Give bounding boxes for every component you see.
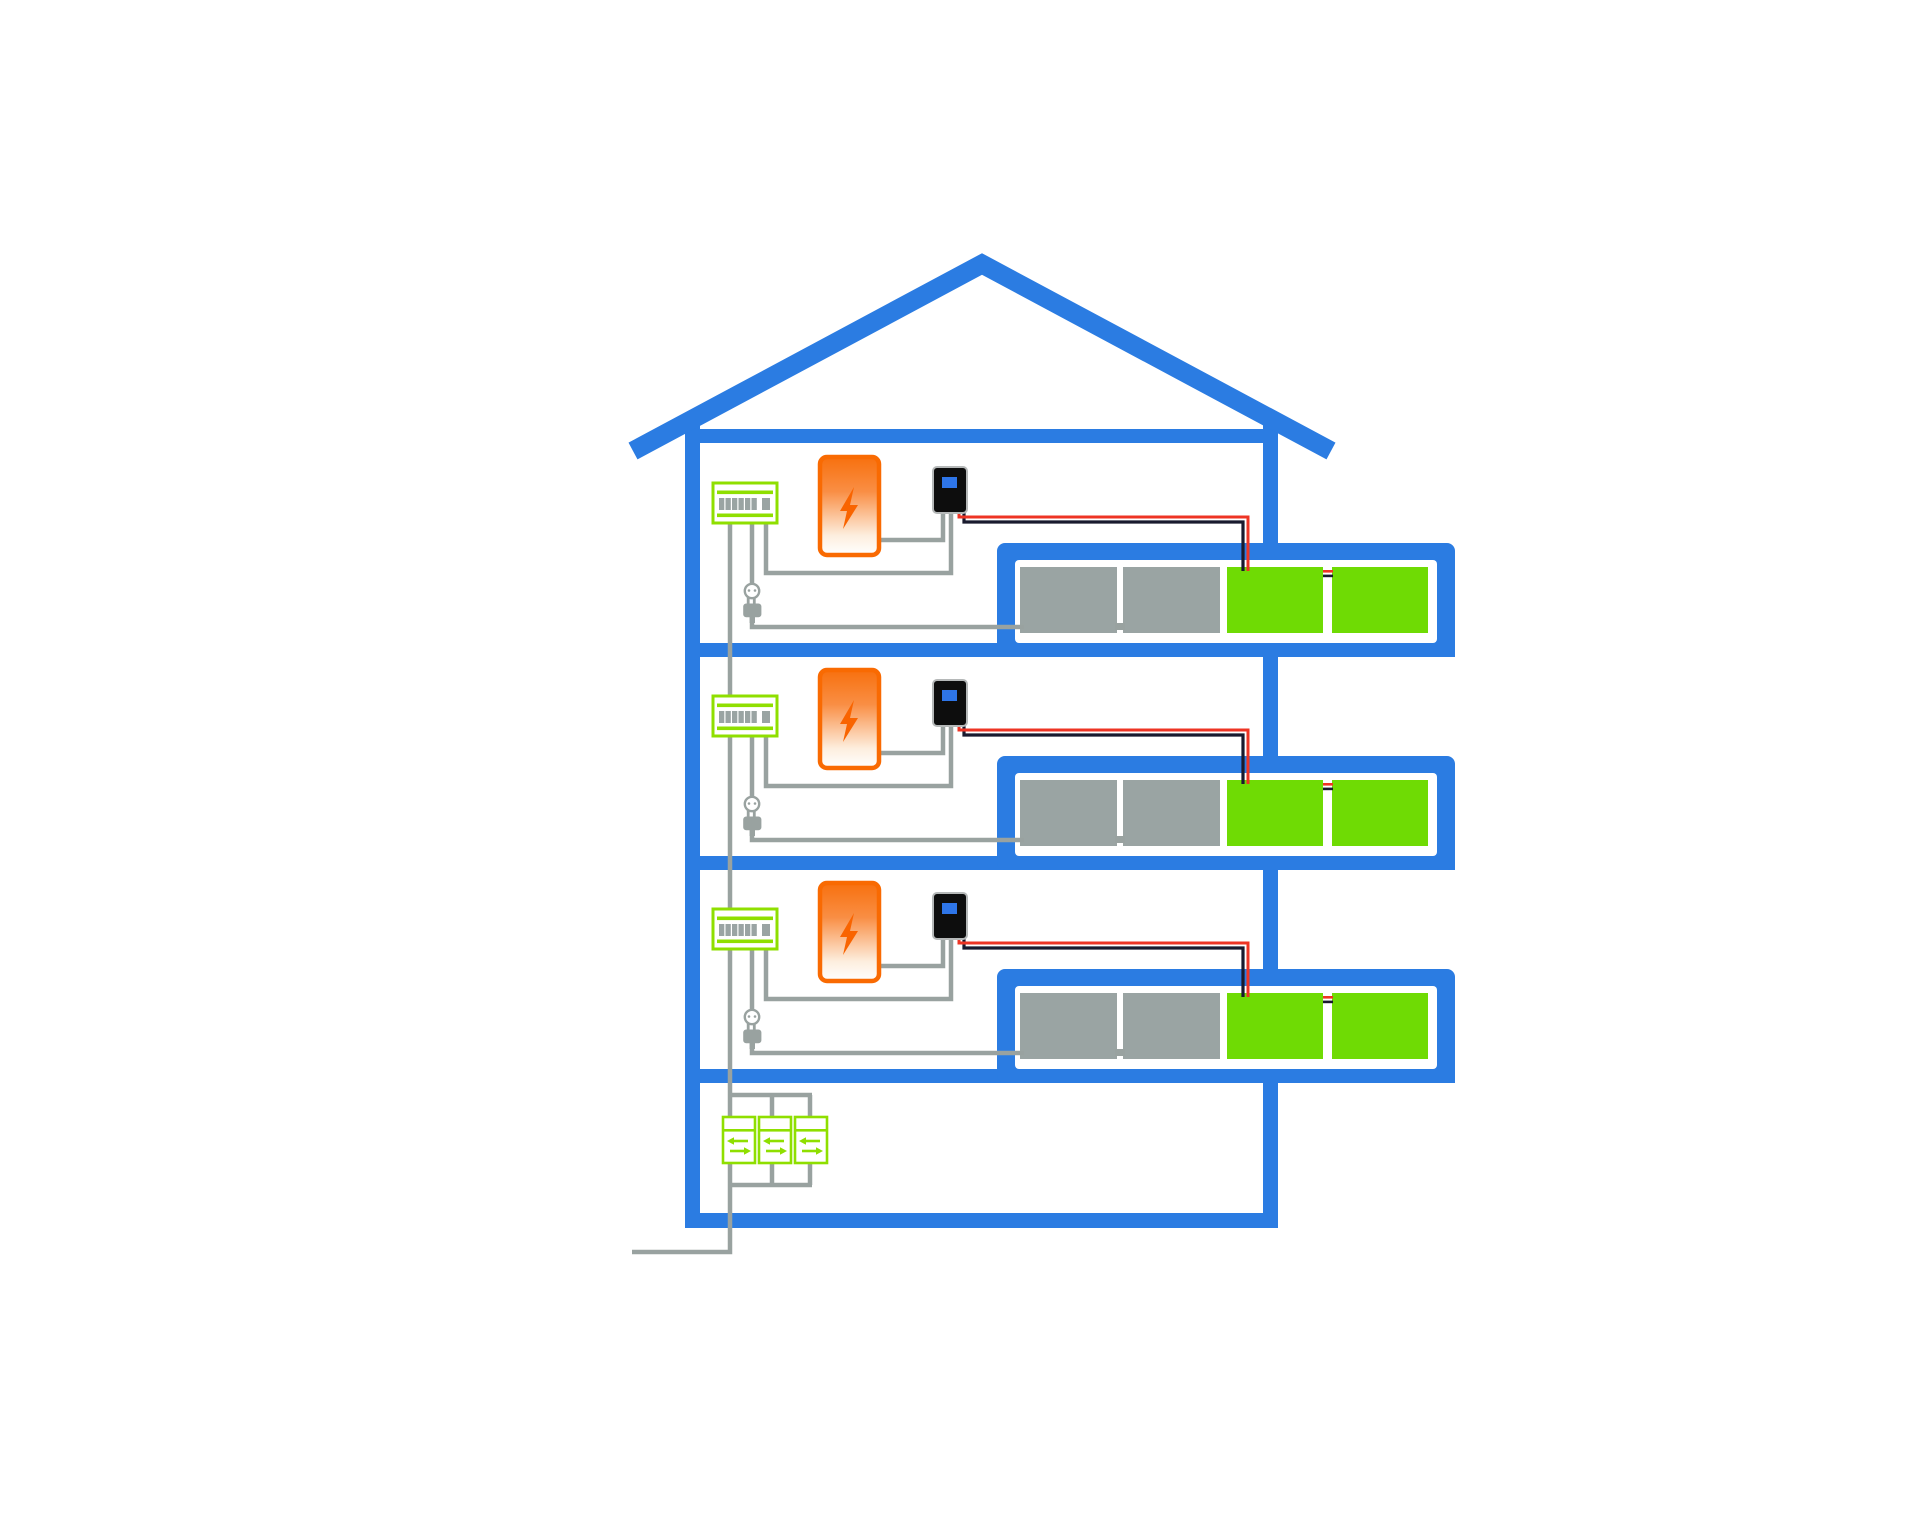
balcony xyxy=(997,756,1455,870)
ceiling-beam-top xyxy=(690,429,1278,443)
inverter-body xyxy=(933,467,967,513)
balcony-panel-gray-1 xyxy=(1020,993,1117,1059)
board-stripe-top xyxy=(717,491,773,495)
module-link-red xyxy=(1323,783,1333,786)
plug-stem xyxy=(750,829,755,836)
bottom-slab xyxy=(685,1213,1278,1228)
solar-module-green-2 xyxy=(1332,780,1428,846)
plug-icon xyxy=(743,817,761,831)
electricity-meter xyxy=(820,457,879,555)
power-socket-plug xyxy=(743,797,761,836)
balcony xyxy=(997,543,1455,657)
plug-icon xyxy=(743,1030,761,1044)
balcony-panel-gray-2 xyxy=(1123,567,1220,633)
socket-pin-hole xyxy=(754,802,757,805)
meter-to-inverter-wire xyxy=(877,938,943,966)
plug-stem xyxy=(750,616,755,623)
balcony-panel-gray-2 xyxy=(1123,993,1220,1059)
energy-meter xyxy=(723,1117,755,1163)
socket-pin-hole xyxy=(748,802,751,805)
board-stripe-bottom xyxy=(717,727,773,731)
gray-panel-link xyxy=(1115,1049,1125,1056)
energy-meter-divider xyxy=(795,1129,827,1132)
solar-module-green-2 xyxy=(1332,993,1428,1059)
balcony-panel-gray-2 xyxy=(1123,780,1220,846)
power-socket-plug xyxy=(743,1010,761,1049)
electricity-meter xyxy=(820,670,879,768)
plug-icon xyxy=(743,604,761,618)
roof xyxy=(633,264,1331,451)
inverter-body xyxy=(933,893,967,939)
solar-module-green-1 xyxy=(1227,993,1323,1059)
board-stripe-bottom xyxy=(717,514,773,518)
solar-module-green-1 xyxy=(1227,567,1323,633)
distribution-board xyxy=(713,483,777,523)
energy-meter xyxy=(759,1117,791,1163)
inverter-display xyxy=(942,690,957,701)
floor-unit xyxy=(713,670,1455,870)
socket-pin-hole xyxy=(748,1015,751,1018)
micro-inverter xyxy=(933,680,967,726)
diagram-canvas xyxy=(0,0,1920,1537)
board-stripe-top xyxy=(717,917,773,921)
socket-icon xyxy=(745,797,759,811)
plug-to-balcony-wire xyxy=(752,1040,1024,1053)
board-stripe-top xyxy=(717,704,773,708)
module-link-black xyxy=(1323,575,1333,578)
electricity-meter xyxy=(820,883,879,981)
meter-to-inverter-wire xyxy=(877,725,943,753)
solar-module-green-2 xyxy=(1332,567,1428,633)
module-link-red xyxy=(1323,570,1333,573)
balcony xyxy=(997,969,1455,1083)
grid-connection-wire xyxy=(632,1163,730,1252)
distribution-board xyxy=(713,909,777,949)
socket-pin-hole xyxy=(748,589,751,592)
plug-to-balcony-wire xyxy=(752,614,1024,627)
power-socket-plug xyxy=(743,584,761,623)
gray-panel-link xyxy=(1115,623,1125,630)
module-link-black xyxy=(1323,788,1333,791)
socket-pin-hole xyxy=(754,589,757,592)
solar-module-green-1 xyxy=(1227,780,1323,846)
plug-stem xyxy=(750,1042,755,1049)
plug-to-balcony-wire xyxy=(752,827,1024,840)
balcony-panel-gray-1 xyxy=(1020,780,1117,846)
module-link-red xyxy=(1323,996,1333,999)
module-link-black xyxy=(1323,1001,1333,1004)
energy-meter-divider xyxy=(723,1129,755,1132)
socket-pin-hole xyxy=(754,1015,757,1018)
micro-inverter xyxy=(933,893,967,939)
meter-to-inverter-wire xyxy=(877,512,943,540)
inverter-display xyxy=(942,903,957,914)
energy-meter xyxy=(795,1117,827,1163)
distribution-board xyxy=(713,696,777,736)
socket-icon xyxy=(745,584,759,598)
gray-panel-link xyxy=(1115,836,1125,843)
left-wall xyxy=(685,418,700,1228)
floor-unit xyxy=(713,883,1455,1083)
inverter-body xyxy=(933,680,967,726)
house-diagram xyxy=(0,0,1920,1537)
balcony-panel-gray-1 xyxy=(1020,567,1117,633)
board-stripe-bottom xyxy=(717,940,773,944)
socket-icon xyxy=(745,1010,759,1024)
micro-inverter xyxy=(933,467,967,513)
house-structure xyxy=(633,264,1455,1228)
inverter-display xyxy=(942,477,957,488)
energy-meter-divider xyxy=(759,1129,791,1132)
floor-unit xyxy=(713,457,1455,657)
